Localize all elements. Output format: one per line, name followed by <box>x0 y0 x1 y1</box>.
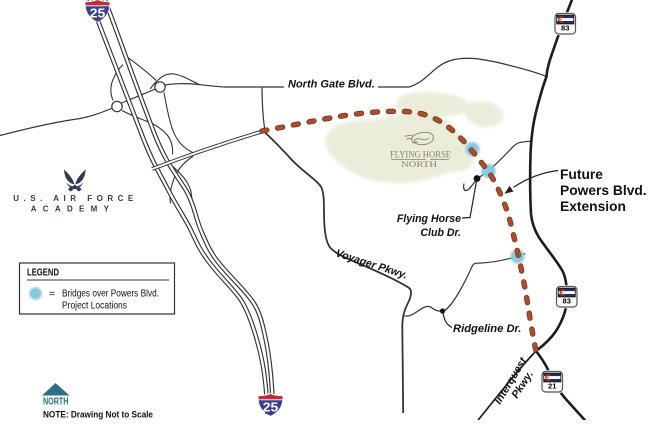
svg-text:FLYING HORSE: FLYING HORSE <box>390 150 451 160</box>
svg-text:21: 21 <box>548 382 557 391</box>
svg-text:Extension: Extension <box>560 199 626 214</box>
svg-text:83: 83 <box>561 24 569 33</box>
svg-text:Powers Blvd.: Powers Blvd. <box>560 183 647 198</box>
svg-text:Future: Future <box>560 167 603 182</box>
svg-text:Bridges over Powers Blvd.: Bridges over Powers Blvd. <box>62 289 159 300</box>
svg-text:Flying Horse: Flying Horse <box>397 213 461 225</box>
svg-text:North Gate Blvd.: North Gate Blvd. <box>288 79 375 91</box>
svg-text:Club Dr.: Club Dr. <box>420 227 461 239</box>
svg-text:U.S. AIR FORCE: U.S. AIR FORCE <box>13 194 137 203</box>
svg-text:83: 83 <box>563 297 571 306</box>
svg-text:LEGEND: LEGEND <box>27 267 59 279</box>
svg-text:Ridgeline Dr.: Ridgeline Dr. <box>453 323 521 335</box>
svg-text:=: = <box>49 289 55 300</box>
svg-text:NORTH: NORTH <box>401 160 437 169</box>
svg-text:ACADEMY: ACADEMY <box>31 205 116 214</box>
svg-text:Project Locations: Project Locations <box>62 301 127 312</box>
svg-text:NORTH: NORTH <box>43 397 69 408</box>
svg-text:NOTE: Drawing Not to Scale: NOTE: Drawing Not to Scale <box>43 409 153 420</box>
